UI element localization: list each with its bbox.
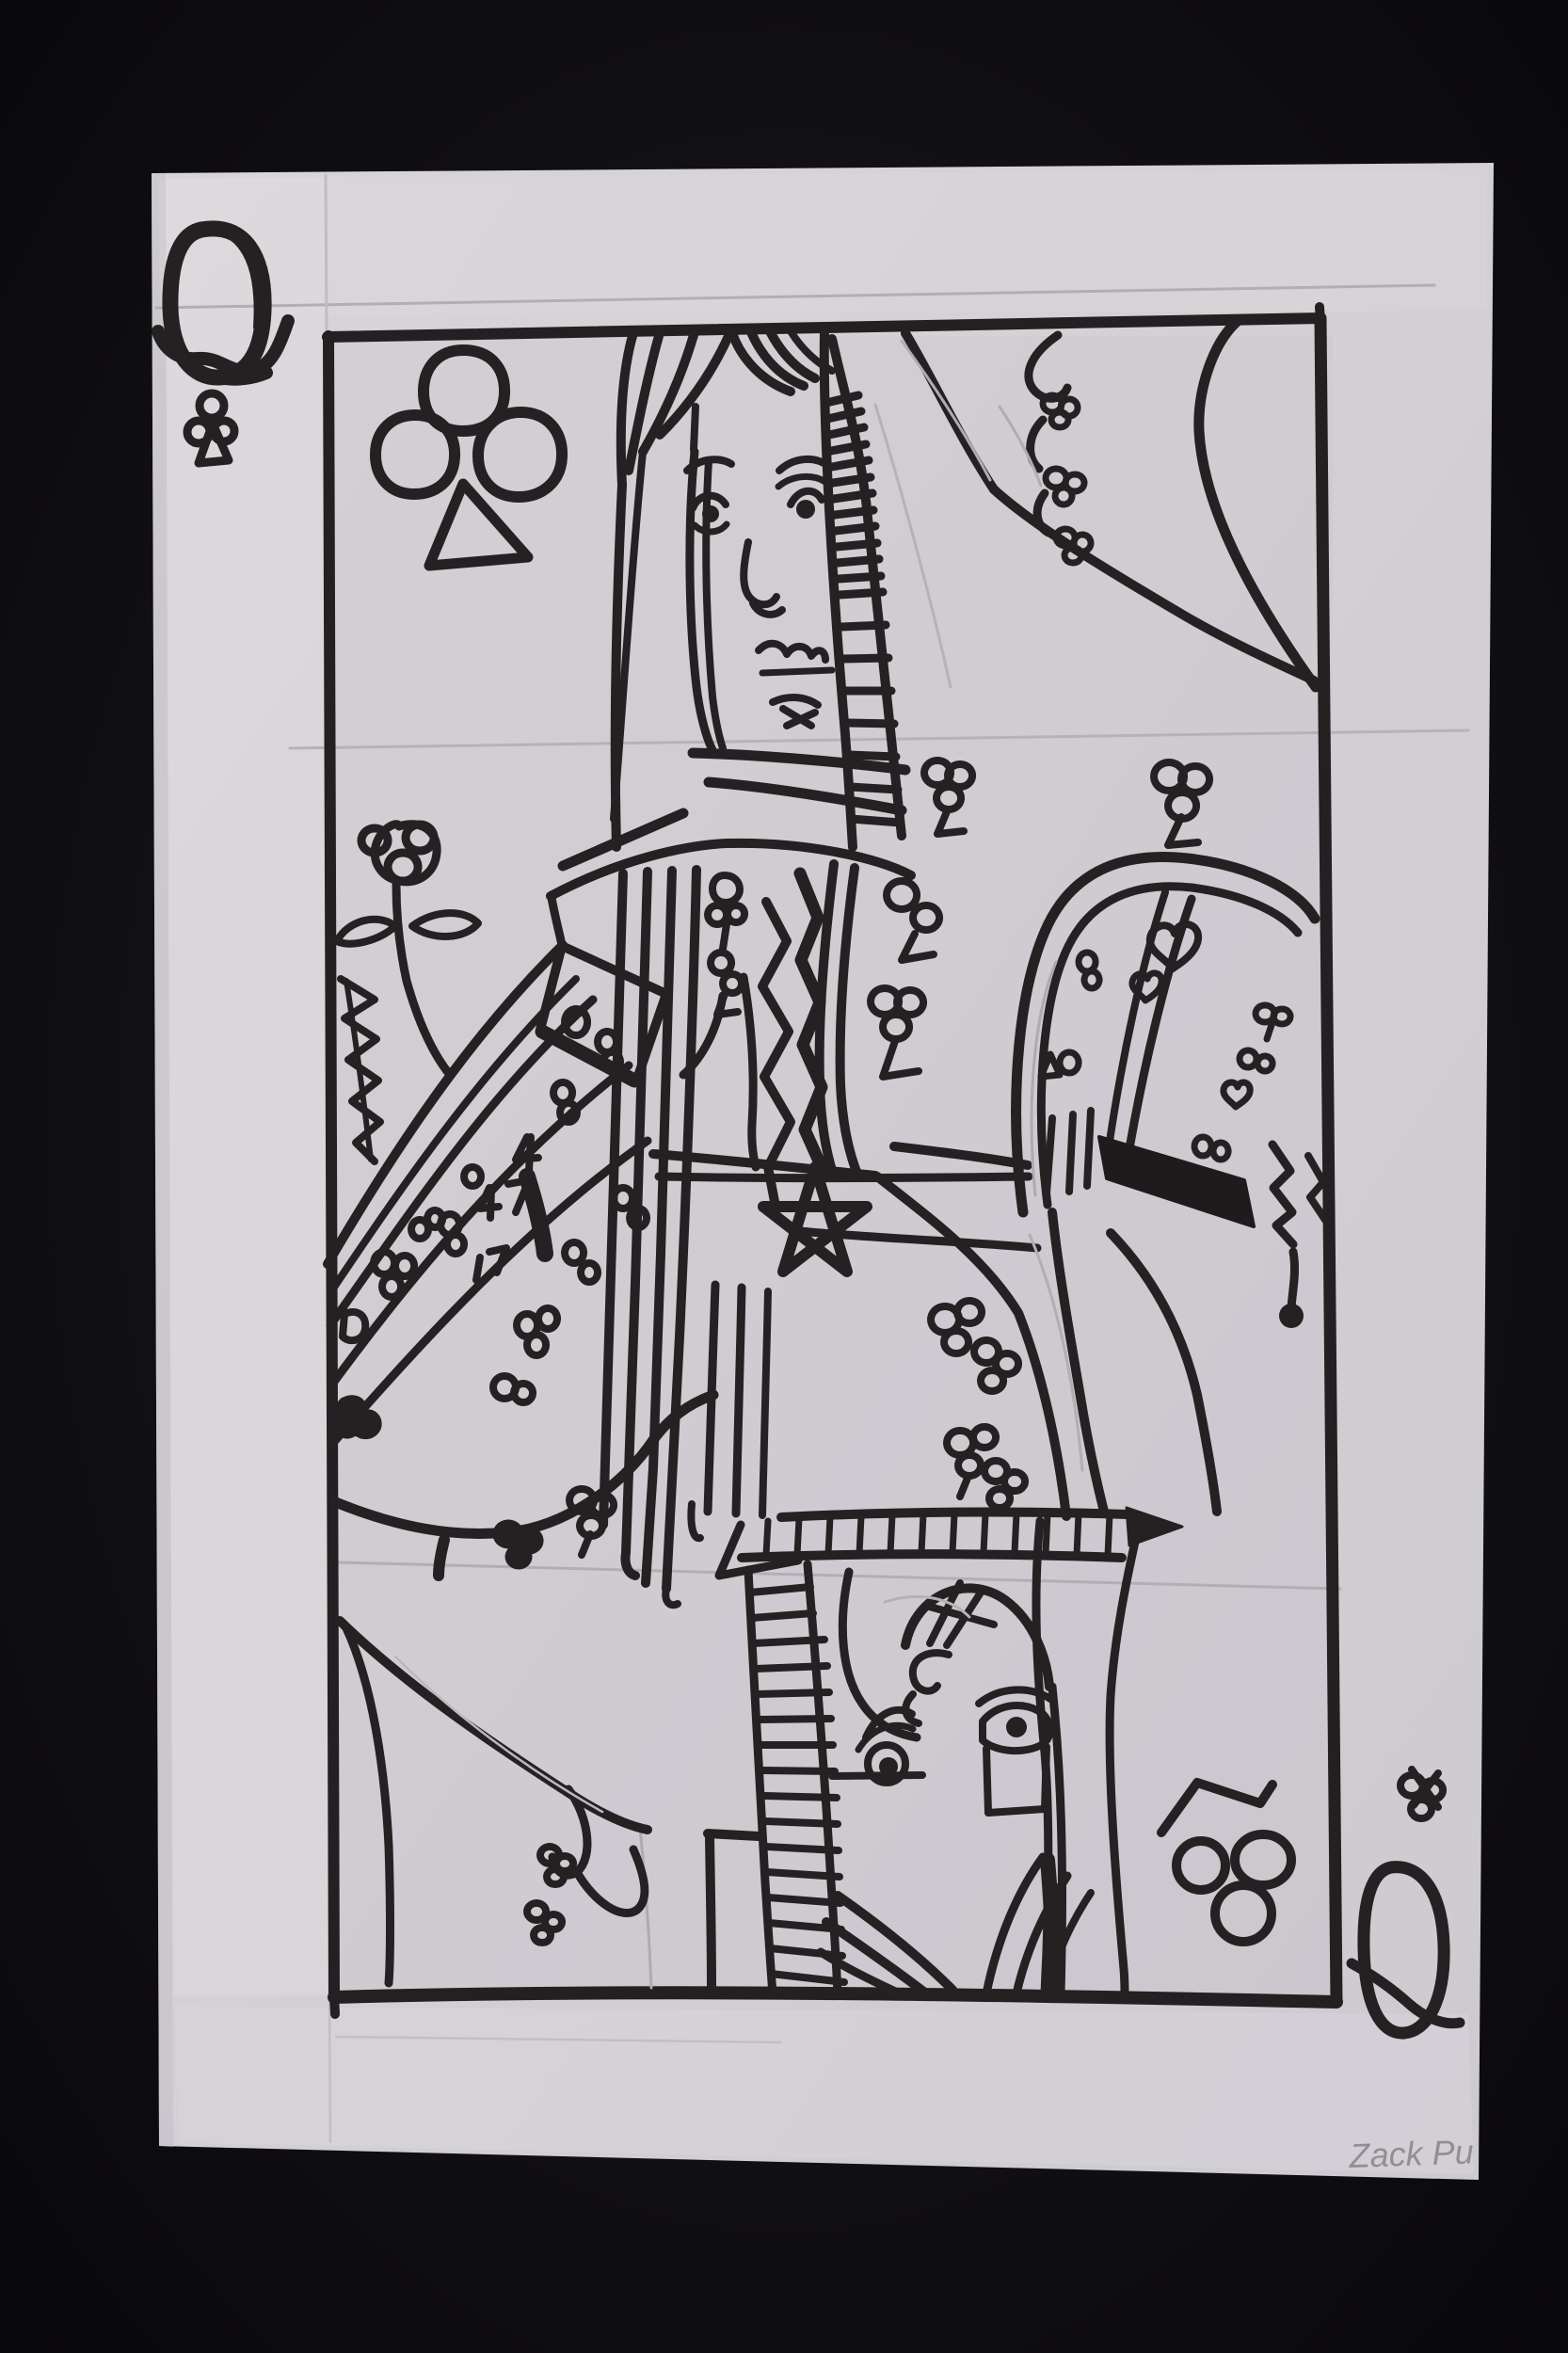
svg-text:Zack Pu: Zack Pu	[1348, 2132, 1474, 2175]
